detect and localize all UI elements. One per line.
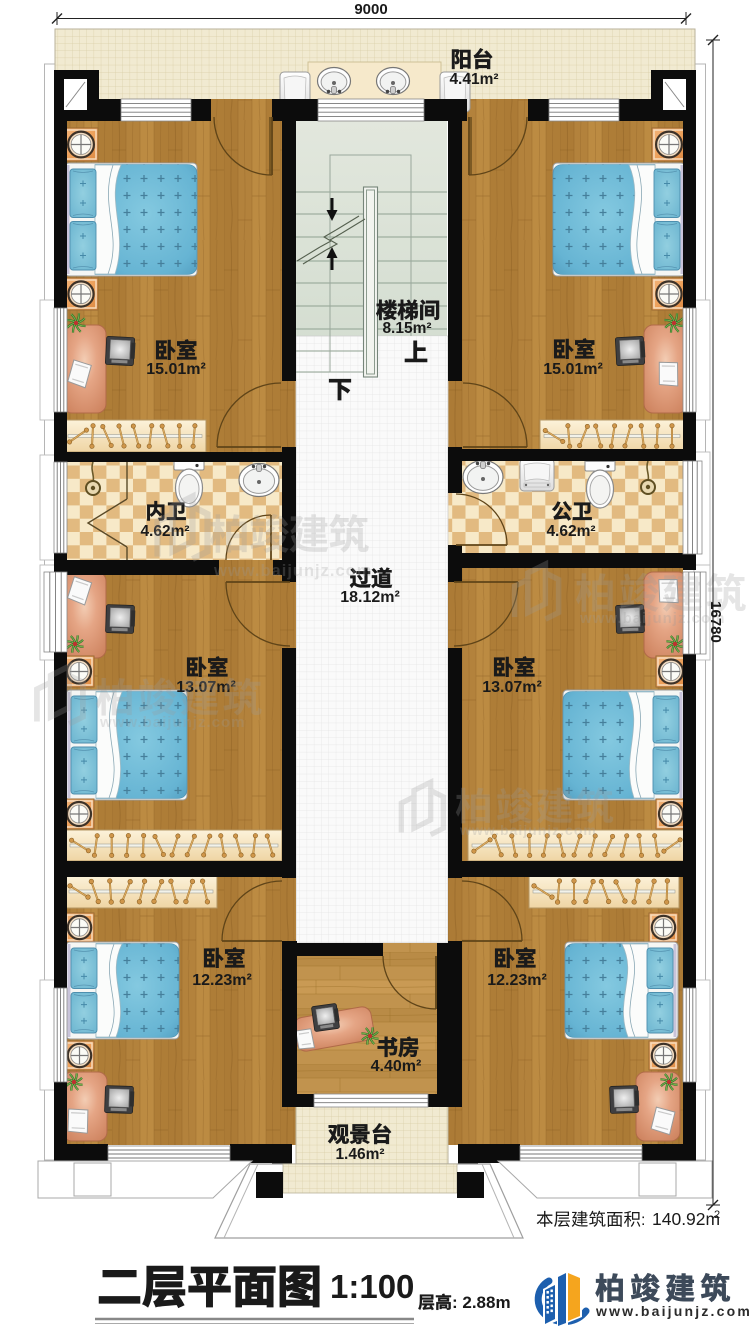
svg-text:13.07m²: 13.07m² xyxy=(482,679,542,696)
svg-text:8.15m²: 8.15m² xyxy=(382,320,431,337)
svg-text:4.62m²: 4.62m² xyxy=(546,523,595,540)
svg-text:12.23m²: 12.23m² xyxy=(487,972,547,989)
svg-text:15.01m²: 15.01m² xyxy=(543,361,603,378)
svg-text:www.baijunjz.com: www.baijunjz.com xyxy=(459,822,597,838)
svg-text:1:100: 1:100 xyxy=(330,1268,414,1305)
svg-text:www.baijunjz.com: www.baijunjz.com xyxy=(579,610,725,627)
svg-text:12.23m²: 12.23m² xyxy=(192,972,252,989)
svg-text:18.12m²: 18.12m² xyxy=(340,589,400,606)
svg-text:15.01m²: 15.01m² xyxy=(146,361,206,378)
svg-text:4.62m²: 4.62m² xyxy=(140,523,189,540)
svg-text:2: 2 xyxy=(714,1209,720,1221)
svg-text:www.baijunjz.com: www.baijunjz.com xyxy=(213,562,372,580)
svg-text:140.92m: 140.92m xyxy=(652,1209,720,1229)
svg-text:www.baijunjz.com: www.baijunjz.com xyxy=(595,1303,750,1319)
svg-text:4.41m²: 4.41m² xyxy=(449,71,498,88)
svg-text:: 2.88m: : 2.88m xyxy=(452,1293,511,1312)
svg-text::: : xyxy=(641,1212,645,1229)
svg-text:1.46m²: 1.46m² xyxy=(335,1146,384,1163)
svg-text:4.40m²: 4.40m² xyxy=(371,1058,422,1075)
svg-text:16780: 16780 xyxy=(707,601,724,643)
svg-text:9000: 9000 xyxy=(354,1,387,18)
svg-text:www.baijunjz.com: www.baijunjz.com xyxy=(99,714,245,731)
